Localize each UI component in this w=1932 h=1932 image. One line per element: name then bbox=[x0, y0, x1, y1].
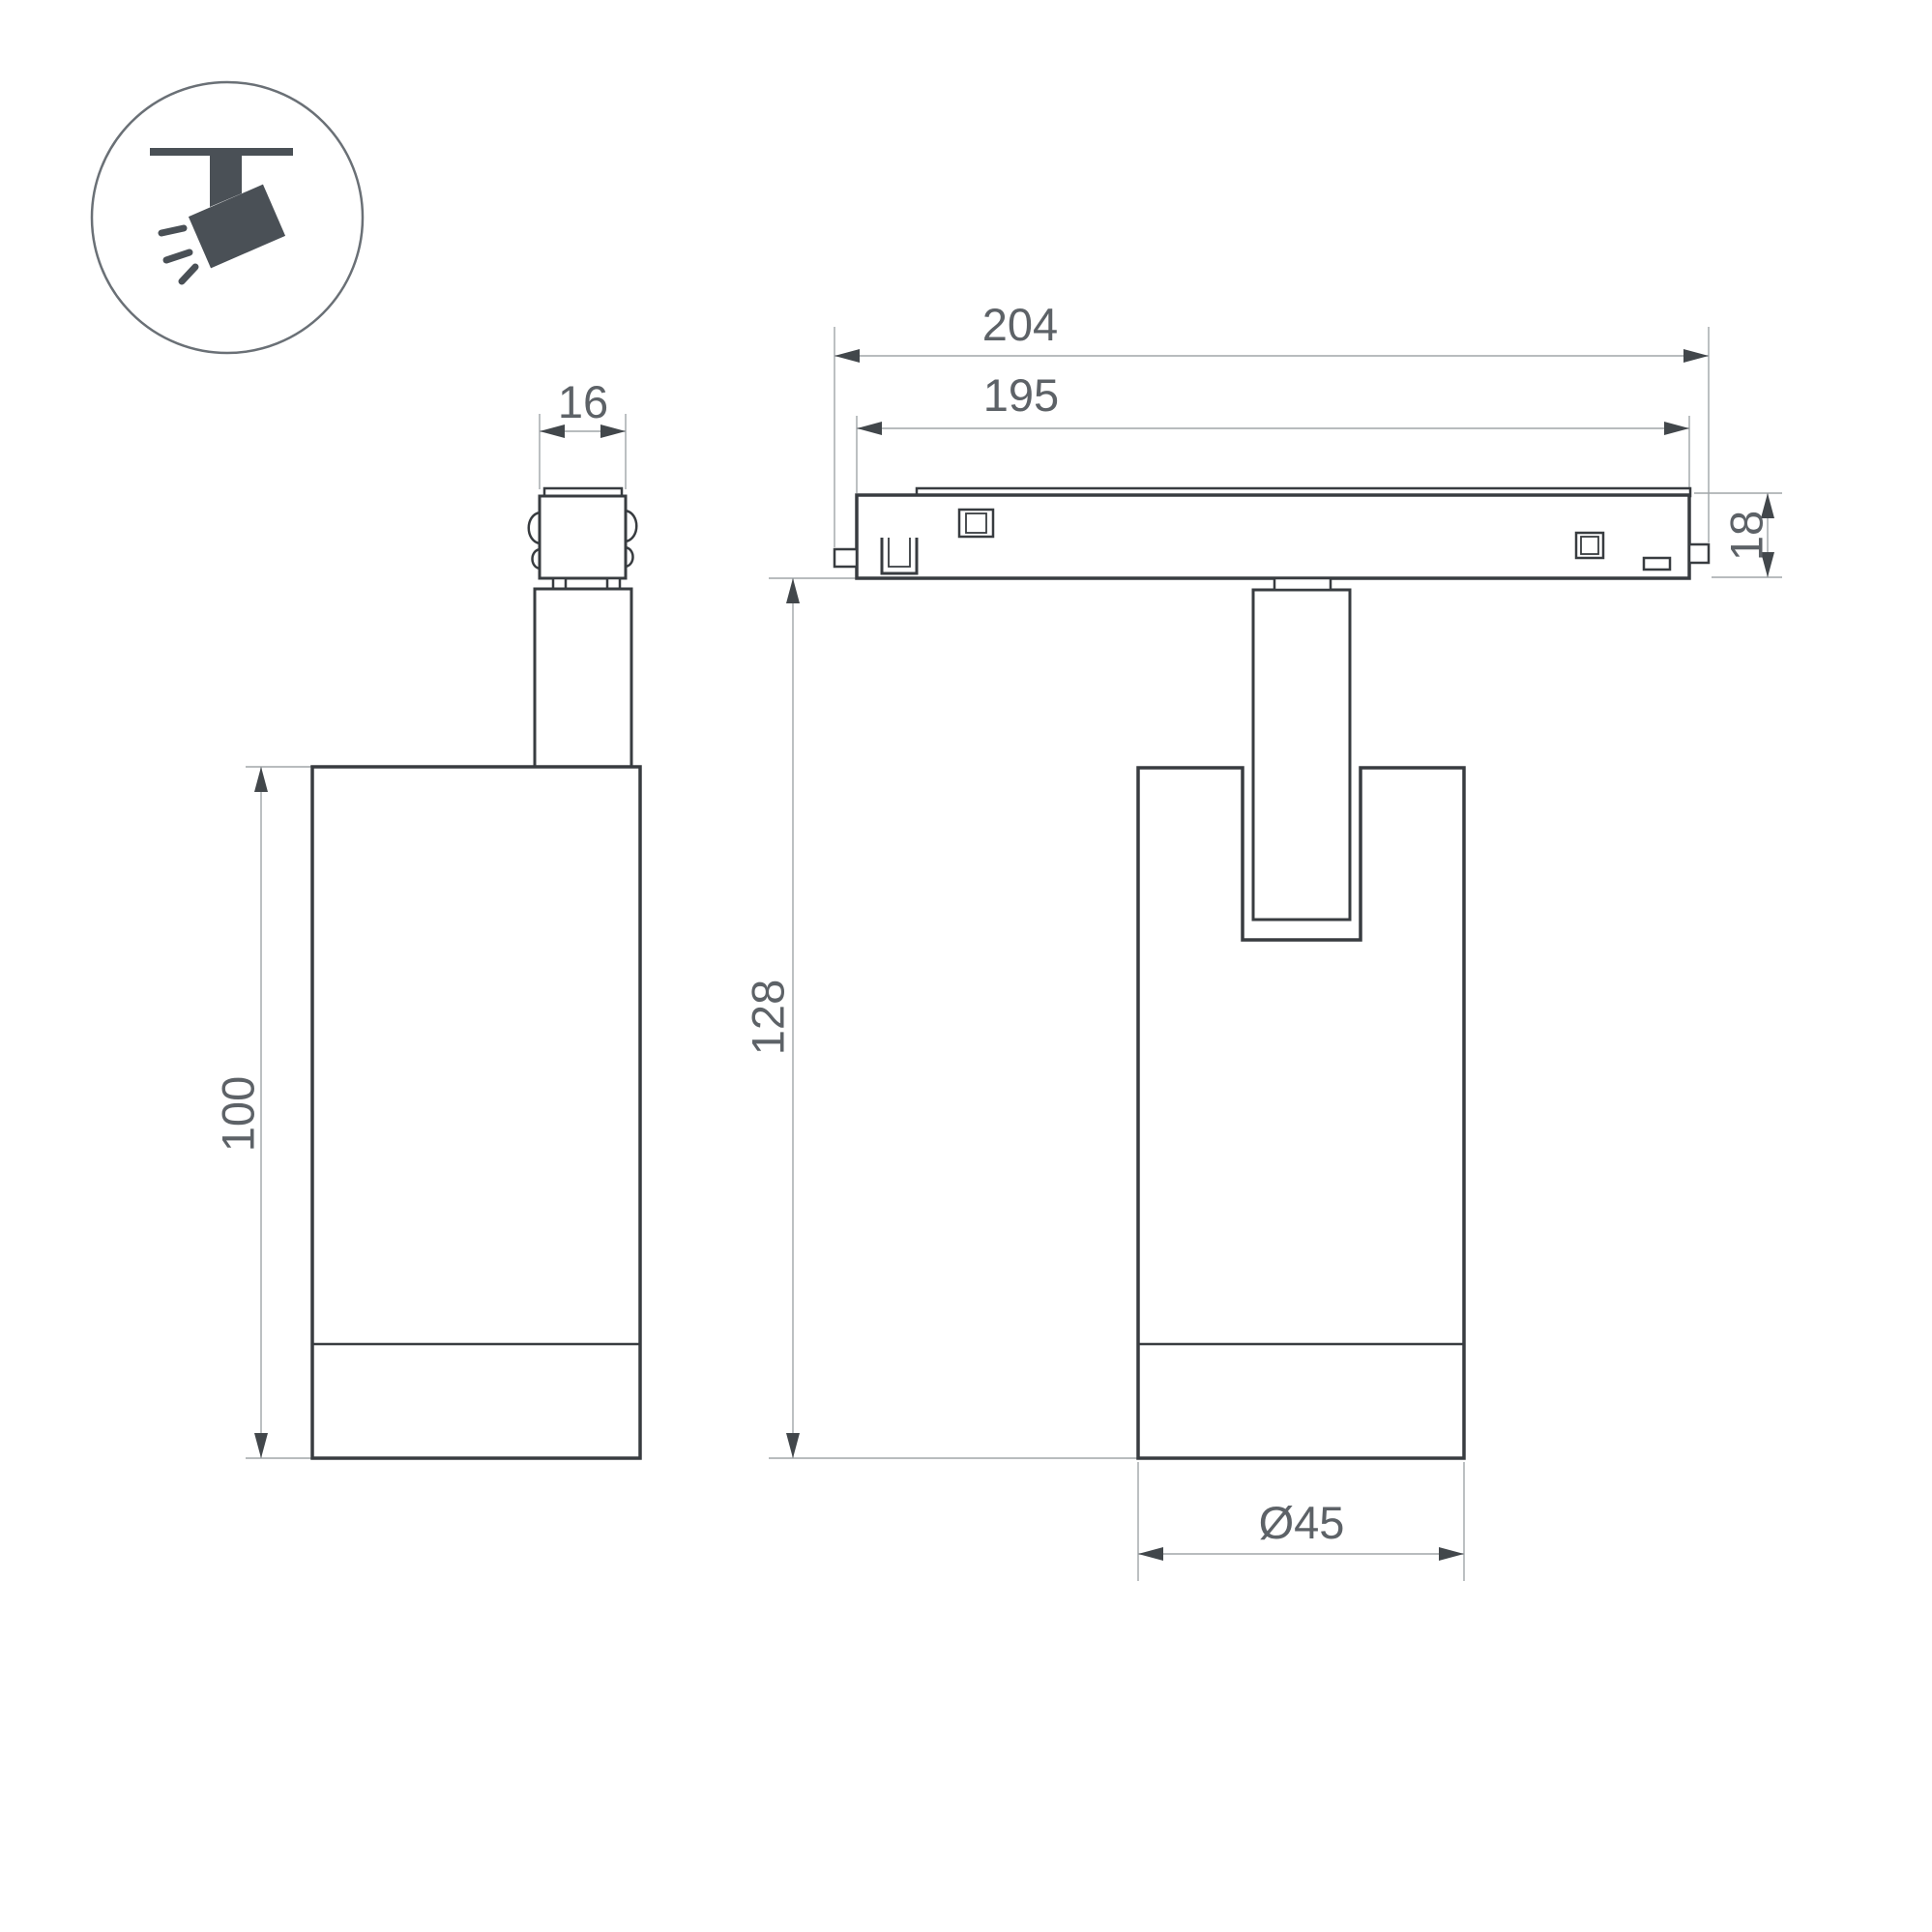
side-latch-right-upper bbox=[626, 511, 636, 542]
track-slot bbox=[1644, 558, 1670, 570]
track-end-tab-right bbox=[1689, 544, 1709, 563]
front-stem-collar bbox=[1274, 578, 1331, 590]
technical-drawing-page: 16 204 195 18 100 128 Ø45 bbox=[0, 0, 1932, 1932]
side-view bbox=[312, 488, 640, 1458]
dim-16-label: 16 bbox=[558, 376, 608, 427]
side-body bbox=[312, 767, 640, 1458]
track-clip bbox=[882, 538, 917, 573]
dim-100-label: 100 bbox=[212, 1076, 263, 1152]
dim-195 bbox=[857, 416, 1689, 493]
track-end-tab-left bbox=[834, 549, 857, 567]
dim-128 bbox=[769, 578, 1138, 1458]
side-latch-left-upper bbox=[529, 512, 540, 543]
icon-light-rays bbox=[161, 228, 195, 281]
front-stem bbox=[1253, 590, 1350, 920]
icon-track-bar bbox=[150, 148, 293, 156]
front-view bbox=[834, 488, 1709, 1458]
side-connector-box bbox=[540, 496, 626, 578]
dim-18-label: 18 bbox=[1720, 511, 1771, 561]
dim-204-label: 204 bbox=[982, 299, 1058, 350]
icon-lamp-head bbox=[189, 185, 285, 269]
dim-195-label: 195 bbox=[983, 369, 1059, 421]
dim-128-label: 128 bbox=[742, 980, 793, 1055]
track-spotlight-icon bbox=[92, 82, 363, 353]
dim-45-label: Ø45 bbox=[1259, 1497, 1345, 1548]
side-foot-left bbox=[553, 578, 566, 589]
technical-drawing-canvas: 16 204 195 18 100 128 Ø45 bbox=[0, 0, 1932, 1932]
side-foot-right bbox=[607, 578, 620, 589]
side-neck bbox=[535, 589, 631, 767]
